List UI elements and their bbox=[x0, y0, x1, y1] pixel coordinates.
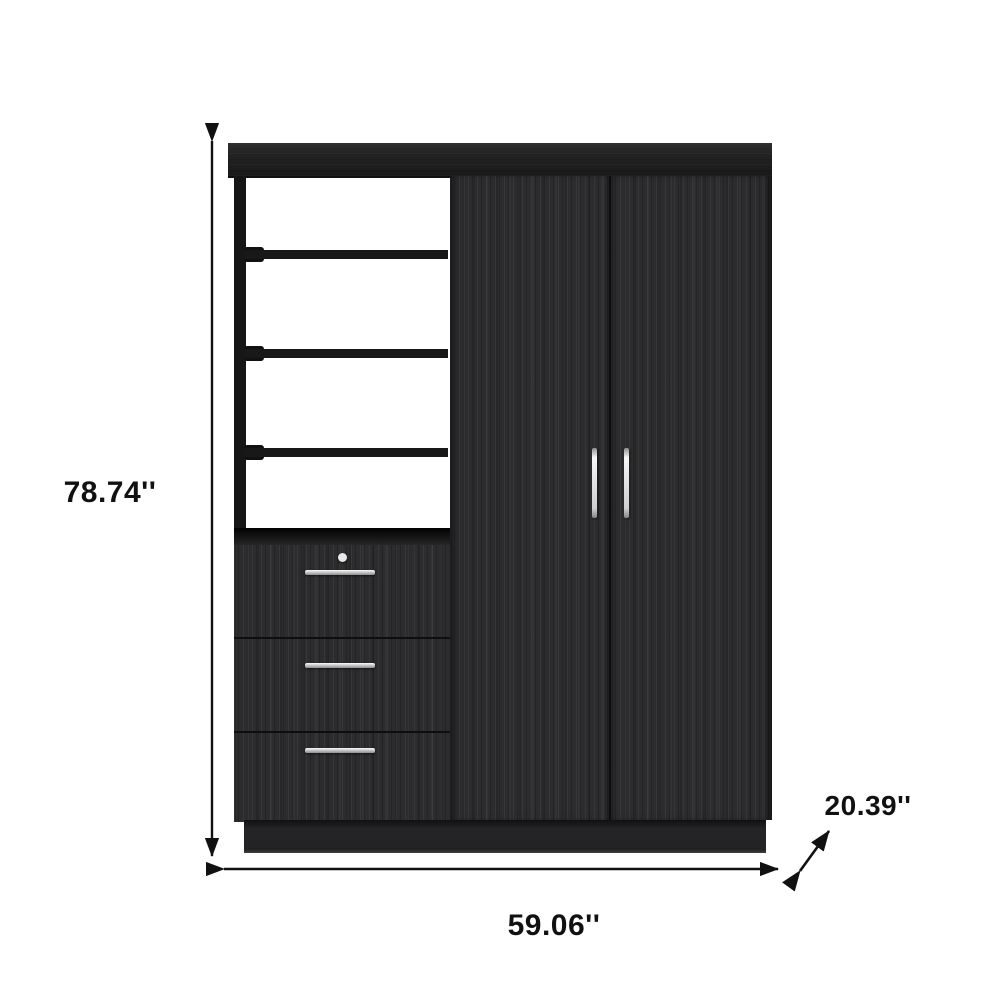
drawer-knob bbox=[338, 553, 347, 562]
door-left bbox=[450, 176, 609, 820]
drawer-2-handle bbox=[305, 663, 375, 668]
drawer-2 bbox=[234, 637, 450, 733]
door-left-handle bbox=[592, 448, 597, 518]
door-right bbox=[611, 176, 772, 820]
base-plinth bbox=[244, 820, 766, 853]
shelf-3 bbox=[244, 448, 448, 457]
height-dimension-label: 78.74'' bbox=[55, 478, 165, 508]
door-right-handle bbox=[624, 448, 629, 518]
door-section bbox=[450, 176, 772, 820]
drawer-1-handle bbox=[305, 570, 375, 575]
shelf-drawer-divider bbox=[234, 528, 450, 545]
top-panel bbox=[228, 143, 772, 178]
depth-dimension-label: 20.39'' bbox=[768, 792, 968, 820]
drawer-3 bbox=[234, 731, 450, 822]
product-dimension-diagram: 78.74'' 59.06'' 20.39'' bbox=[0, 0, 1000, 1000]
width-dimension-label: 59.06'' bbox=[454, 911, 654, 941]
drawer-3-handle bbox=[305, 748, 375, 753]
shelf-2 bbox=[244, 349, 448, 358]
shelf-1 bbox=[244, 250, 448, 259]
